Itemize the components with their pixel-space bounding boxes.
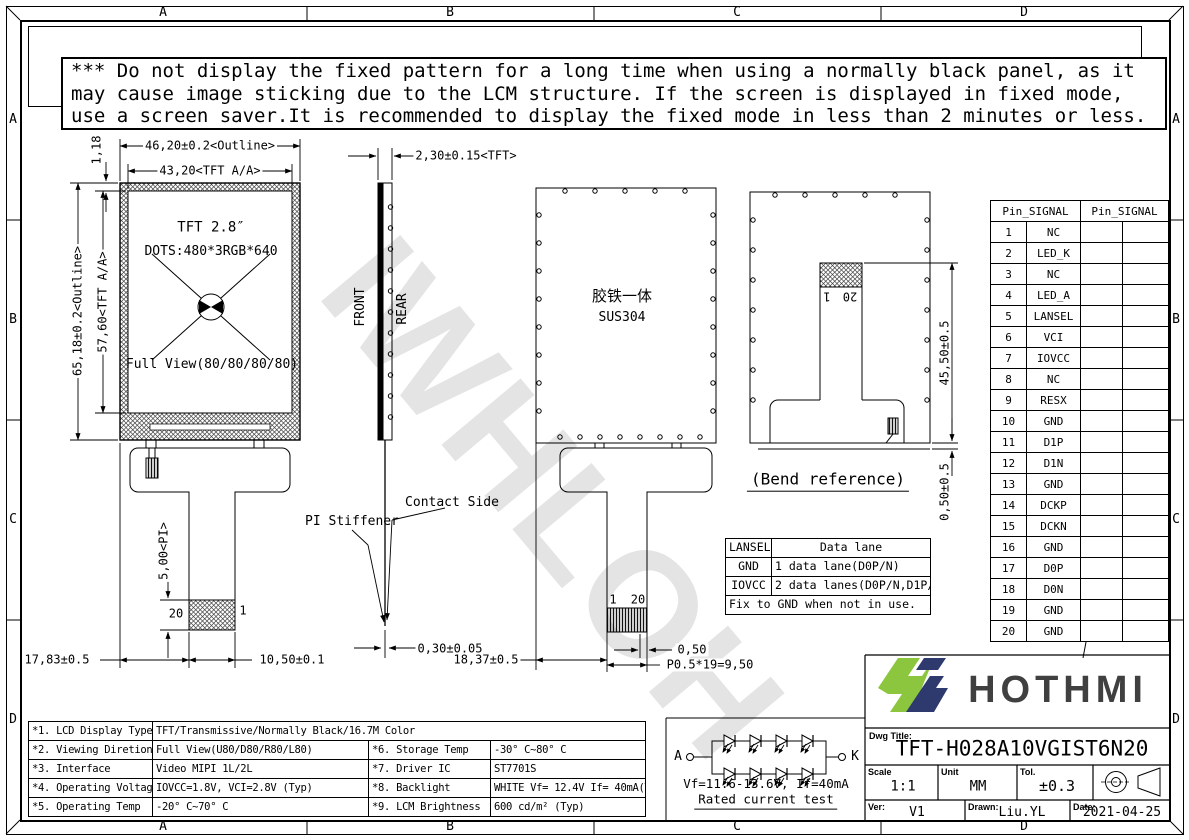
pin-number-cell: 8	[991, 369, 1027, 390]
pin-signal-cell: D0P	[1027, 558, 1081, 579]
spec-value-cell: Video MIPI 1L/2L	[153, 760, 369, 779]
pin-empty-cell	[1123, 327, 1169, 348]
pin-signal-cell: D1N	[1027, 453, 1081, 474]
zone-label-left-c: C	[2, 513, 24, 527]
pin-number-cell: 3	[991, 264, 1027, 285]
pin-empty-cell	[1081, 411, 1123, 432]
pin-empty-cell	[1081, 369, 1123, 390]
lansel-header-row: LANSEL Data lane	[726, 539, 931, 558]
pin-number-cell: 17	[991, 558, 1027, 579]
zone-label-bottom-a: A	[152, 820, 174, 834]
version-label: Ver:	[868, 803, 885, 812]
side-view-drawing	[378, 183, 393, 626]
drawing-title: TFT-H028A10VGIST6N20	[896, 737, 1149, 760]
pin-empty-cell	[1123, 516, 1169, 537]
drawn-by-label: Drawn:	[968, 803, 999, 812]
pin-signal-cell: NC	[1027, 369, 1081, 390]
spec-value-cell: ST7701S	[491, 760, 646, 779]
pin-empty-cell	[1081, 222, 1123, 243]
pin-table-body: 1NC2LED_K3NC4LED_A5LANSEL6VCI7IOVCC8NC9R…	[991, 222, 1169, 642]
spec-value-cell: IOVCC=1.8V, VCI=2.8V (Typ)	[153, 779, 369, 798]
pin-empty-cell	[1081, 600, 1123, 621]
pin-empty-cell	[1123, 600, 1169, 621]
spec-label-cell: *1. LCD Display Type	[29, 722, 153, 741]
pin-signal-table: Pin_SIGNAL Pin_SIGNAL 1NC2LED_K3NC4LED_A…	[990, 200, 1169, 642]
date-label: Date:	[1073, 803, 1096, 812]
spec-value-cell: TFT/Transmissive/Normally Black/16.7M Co…	[153, 722, 646, 741]
pin-empty-cell	[1081, 264, 1123, 285]
spec-value-cell: -30° C~80° C	[491, 741, 646, 760]
led-anode-label: A	[674, 750, 682, 764]
lansel-mode-cell: 2 data lanes(D0P/N,D1P/N)	[772, 577, 931, 596]
spec-table-row: *1. LCD Display TypeTFT/Transmissive/Nor…	[29, 722, 646, 741]
zone-label-bottom-d: D	[1013, 820, 1035, 834]
pin-empty-cell	[1081, 432, 1123, 453]
pin-signal-cell: RESX	[1027, 390, 1081, 411]
zone-label-right-d: D	[1165, 713, 1187, 727]
pin-number-cell: 13	[991, 474, 1027, 495]
pin-table-row: 17D0P	[991, 558, 1169, 579]
pin-empty-cell	[1123, 285, 1169, 306]
spec-table-row: *5. Operating Temp-20° C~70° C*9. LCM Br…	[29, 798, 646, 817]
pin-signal-cell: GND	[1027, 600, 1081, 621]
pin-empty-cell	[1123, 432, 1169, 453]
tolerance-value: ±0.3	[1039, 778, 1075, 795]
pin-empty-cell	[1081, 306, 1123, 327]
pin-number-cell: 16	[991, 537, 1027, 558]
pin-empty-cell	[1123, 306, 1169, 327]
led-cathode-label: K	[851, 750, 859, 764]
rear-side-label: REAR	[396, 293, 410, 324]
pin-empty-cell	[1123, 411, 1169, 432]
zone-label-top-a: A	[152, 6, 174, 20]
zone-label-right-b: B	[1165, 313, 1187, 327]
spec-label-cell: *4. Operating Voltage	[29, 779, 153, 798]
bend-pin-1-label: 1	[823, 289, 830, 302]
pin-signal-cell: IOVCC	[1027, 348, 1081, 369]
lansel-table-row: IOVCC2 data lanes(D0P/N,D1P/N)	[726, 577, 931, 596]
zone-label-right-a: A	[1165, 113, 1187, 127]
pin-signal-cell: DCKN	[1027, 516, 1081, 537]
unit-label: Unit	[941, 768, 959, 777]
pin-signal-cell: LED_K	[1027, 243, 1081, 264]
spec-label-cell: *2. Viewing Diretion	[29, 741, 153, 760]
pin-number-cell: 4	[991, 285, 1027, 306]
zone-label-top-b: B	[439, 6, 461, 20]
pin-table-row: 7IOVCC	[991, 348, 1169, 369]
pin-number-cell: 19	[991, 600, 1027, 621]
pi-stiffener-label: PI Stiffener	[305, 515, 399, 529]
pin-table-row: 2LED_K	[991, 243, 1169, 264]
dim-fpc-width: 10,50±0.1	[257, 653, 326, 666]
lansel-note: Fix to GND when not in use.	[726, 596, 931, 615]
drawn-by-value: Liu.YL	[999, 806, 1046, 820]
dim-pitch-end: 0,50	[676, 643, 709, 656]
pin-signal-cell: LED_A	[1027, 285, 1081, 306]
pin-empty-cell	[1081, 621, 1123, 642]
panel-viewing-label: Full View(80/80/80/80)	[126, 358, 298, 372]
led-test-caption: Rated current test	[694, 793, 837, 810]
zone-label-bottom-c: C	[726, 820, 748, 834]
unit-value: MM	[970, 779, 987, 794]
pin-table-row: 16GND	[991, 537, 1169, 558]
pin-signal-cell: GND	[1027, 537, 1081, 558]
pin-empty-cell	[1081, 453, 1123, 474]
pin-signal-cell: DCKP	[1027, 495, 1081, 516]
panel-resolution-label: DOTS:480*3RGB*640	[144, 245, 277, 259]
lansel-signal-cell: IOVCC	[726, 577, 772, 596]
pin-table-row: 13GND	[991, 474, 1169, 495]
front-pin-20-label: 20	[169, 607, 183, 620]
lansel-table: LANSEL Data lane GND1 data lane(D0P/N)IO…	[725, 538, 931, 615]
front-side-label: FRONT	[354, 287, 368, 326]
warning-line-3: use a screen saver.It is recommended to …	[71, 104, 1146, 128]
dwg-title-label: Dwg Title:	[869, 732, 912, 741]
pin-signal-cell: GND	[1027, 474, 1081, 495]
pin-table-row: 12D1N	[991, 453, 1169, 474]
spec-table-body: *1. LCD Display TypeTFT/Transmissive/Nor…	[29, 722, 646, 817]
spec-value-cell: WHITE Vf= 12.4V If= 40mA(Typ)	[491, 779, 646, 798]
pin-table-row: 10GND	[991, 411, 1169, 432]
brand-wordmark: HOTHMI	[948, 666, 1168, 714]
warning-box: *** Do not display the fixed pattern for…	[28, 26, 1142, 107]
pin-signal-cell: GND	[1027, 621, 1081, 642]
pin-number-cell: 10	[991, 411, 1027, 432]
dim-bend-length: 45,50±0.5	[938, 318, 951, 387]
rear-pin-20-label: 20	[631, 593, 645, 606]
tolerance-label: Tol.	[1020, 768, 1035, 777]
bend-reference-caption: (Bend reference)	[747, 471, 909, 492]
rear-view-drawing	[536, 188, 716, 632]
spec-value-cell: 600 cd/m² (Typ)	[491, 798, 646, 817]
side-view-dimensions	[348, 148, 445, 658]
lansel-header-mode: Data lane	[772, 539, 931, 558]
pin-empty-cell	[1123, 453, 1169, 474]
lansel-mode-cell: 1 data lane(D0P/N)	[772, 558, 931, 577]
spec-table: *1. LCD Display TypeTFT/Transmissive/Nor…	[28, 721, 646, 817]
dim-bezel-top: 1,18	[90, 134, 103, 167]
dim-outline-width: 46,20±0.2<Outline>	[143, 139, 277, 152]
warning-box-inner: *** Do not display the fixed pattern for…	[61, 57, 1167, 130]
pin-number-cell: 20	[991, 621, 1027, 642]
pin-table-header-left: Pin_SIGNAL	[991, 201, 1081, 222]
dim-pi-length: 5,00<PI>	[157, 520, 170, 582]
pin-table-row: 15DCKN	[991, 516, 1169, 537]
pin-table-row: 14DCKP	[991, 495, 1169, 516]
dim-bend-gap: 0,50±0.5	[938, 461, 951, 523]
pin-table-header-row: Pin_SIGNAL Pin_SIGNAL	[991, 201, 1169, 222]
dim-active-area-width: 43,20<TFT A/A>	[157, 164, 262, 177]
spec-label-cell: *5. Operating Temp	[29, 798, 153, 817]
front-pin-1-label: 1	[239, 604, 246, 617]
pin-number-cell: 11	[991, 432, 1027, 453]
pin-signal-cell: NC	[1027, 264, 1081, 285]
pin-empty-cell	[1081, 558, 1123, 579]
pin-signal-cell: GND	[1027, 411, 1081, 432]
contact-side-label: Contact Side	[405, 496, 499, 510]
pin-signal-cell: LANSEL	[1027, 306, 1081, 327]
pin-empty-cell	[1081, 474, 1123, 495]
pin-empty-cell	[1081, 348, 1123, 369]
pin-empty-cell	[1081, 495, 1123, 516]
lansel-note-row: Fix to GND when not in use.	[726, 596, 931, 615]
spec-table-row: *2. Viewing DiretionFull View(U80/D80/R8…	[29, 741, 646, 760]
pin-empty-cell	[1123, 474, 1169, 495]
bend-view-drawing	[750, 192, 930, 449]
scale-value: 1:1	[890, 779, 915, 794]
spec-label-cell: *3. Interface	[29, 760, 153, 779]
pin-number-cell: 1	[991, 222, 1027, 243]
rear-pin-1-label: 1	[609, 593, 616, 606]
spec-label-cell: *9. LCM Brightness	[369, 798, 491, 817]
zone-label-top-c: C	[726, 6, 748, 20]
pin-empty-cell	[1081, 516, 1123, 537]
pin-empty-cell	[1123, 495, 1169, 516]
pin-table-row: 20GND	[991, 621, 1169, 642]
pin-empty-cell	[1081, 327, 1123, 348]
pin-number-cell: 18	[991, 579, 1027, 600]
spec-value-cell: Full View(U80/D80/R80/L80)	[153, 741, 369, 760]
pin-table-row: 5LANSEL	[991, 306, 1169, 327]
pin-empty-cell	[1081, 537, 1123, 558]
pin-empty-cell	[1123, 390, 1169, 411]
zone-label-left-b: B	[2, 313, 24, 327]
pin-table-row: 6VCI	[991, 327, 1169, 348]
lansel-header-signal: LANSEL	[726, 539, 772, 558]
pin-empty-cell	[1123, 264, 1169, 285]
projection-symbol-icon	[1101, 768, 1160, 796]
rear-view-dimensions	[516, 443, 672, 672]
scale-label: Scale	[868, 768, 892, 777]
pin-empty-cell	[1123, 369, 1169, 390]
spec-label-cell: *6. Storage Temp	[369, 741, 491, 760]
pin-number-cell: 12	[991, 453, 1027, 474]
pin-signal-cell: VCI	[1027, 327, 1081, 348]
spec-table-row: *3. InterfaceVideo MIPI 1L/2L*7. Driver …	[29, 760, 646, 779]
panel-size-label: TFT 2.8″	[177, 220, 244, 235]
pin-empty-cell	[1123, 243, 1169, 264]
pin-table-row: 1NC	[991, 222, 1169, 243]
pin-number-cell: 7	[991, 348, 1027, 369]
pin-number-cell: 6	[991, 327, 1027, 348]
zone-label-right-c: C	[1165, 513, 1187, 527]
pin-table-row: 11D1P	[991, 432, 1169, 453]
pin-table-row: 19GND	[991, 600, 1169, 621]
pin-empty-cell	[1123, 537, 1169, 558]
led-rating-label: Vf=11.6-13.6V, If=40mA	[683, 777, 849, 791]
zone-label-left-d: D	[2, 713, 24, 727]
pin-signal-cell: D0N	[1027, 579, 1081, 600]
engineering-drawing-page: IWHLOH A B C D A B C D A B C D A B C D *…	[0, 0, 1189, 840]
rear-material-cn-label: 胶铁一体	[592, 288, 652, 305]
pin-table-row: 3NC	[991, 264, 1169, 285]
pin-number-cell: 9	[991, 390, 1027, 411]
pin-number-cell: 5	[991, 306, 1027, 327]
pin-empty-cell	[1081, 390, 1123, 411]
zone-label-top-d: D	[1013, 6, 1035, 20]
warning-line-1: *** Do not display the fixed pattern for…	[71, 59, 1135, 83]
pin-empty-cell	[1123, 621, 1169, 642]
pin-empty-cell	[1081, 243, 1123, 264]
pin-table-row: 18D0N	[991, 579, 1169, 600]
dim-outline-height: 65,18±0.2<Outline>	[71, 244, 84, 378]
dim-pitch: P0.5*19=9,50	[665, 658, 756, 671]
pin-table-row: 9RESX	[991, 390, 1169, 411]
spec-label-cell: *7. Driver IC	[369, 760, 491, 779]
spec-value-cell: -20° C~70° C	[153, 798, 369, 817]
spec-label-cell: *8. Backlight	[369, 779, 491, 798]
pin-empty-cell	[1123, 558, 1169, 579]
pin-table-row: 4LED_A	[991, 285, 1169, 306]
pin-number-cell: 2	[991, 243, 1027, 264]
lansel-table-body: GND1 data lane(D0P/N)IOVCC2 data lanes(D…	[726, 558, 931, 596]
warning-line-2: may cause image sticking due to the LCM …	[71, 82, 1123, 106]
bend-pin-20-label: 20	[843, 289, 857, 302]
hothmi-logo	[878, 658, 948, 712]
spec-table-row: *4. Operating VoltageIOVCC=1.8V, VCI=2.8…	[29, 779, 646, 798]
lansel-signal-cell: GND	[726, 558, 772, 577]
pin-empty-cell	[1123, 222, 1169, 243]
zone-label-bottom-b: B	[439, 820, 461, 834]
pin-number-cell: 14	[991, 495, 1027, 516]
zone-label-left-a: A	[2, 113, 24, 127]
dim-tft-thickness: 2,30±0.15<TFT>	[413, 149, 518, 162]
pin-table-header-right: Pin_SIGNAL	[1081, 201, 1169, 222]
rear-material-label: SUS304	[599, 311, 646, 325]
pin-signal-cell: D1P	[1027, 432, 1081, 453]
pin-empty-cell	[1081, 579, 1123, 600]
pin-table-row: 8NC	[991, 369, 1169, 390]
pin-empty-cell	[1123, 348, 1169, 369]
pin-empty-cell	[1081, 285, 1123, 306]
dim-active-area-height: 57,60<TFT A/A>	[96, 249, 109, 354]
dim-tail-offset: 18,37±0.5	[451, 653, 520, 666]
version-value: V1	[909, 806, 925, 820]
pin-number-cell: 15	[991, 516, 1027, 537]
lansel-table-row: GND1 data lane(D0P/N)	[726, 558, 931, 577]
pin-empty-cell	[1123, 579, 1169, 600]
pin-signal-cell: NC	[1027, 222, 1081, 243]
dim-fpc-offset: 17,83±0.5	[22, 653, 91, 666]
